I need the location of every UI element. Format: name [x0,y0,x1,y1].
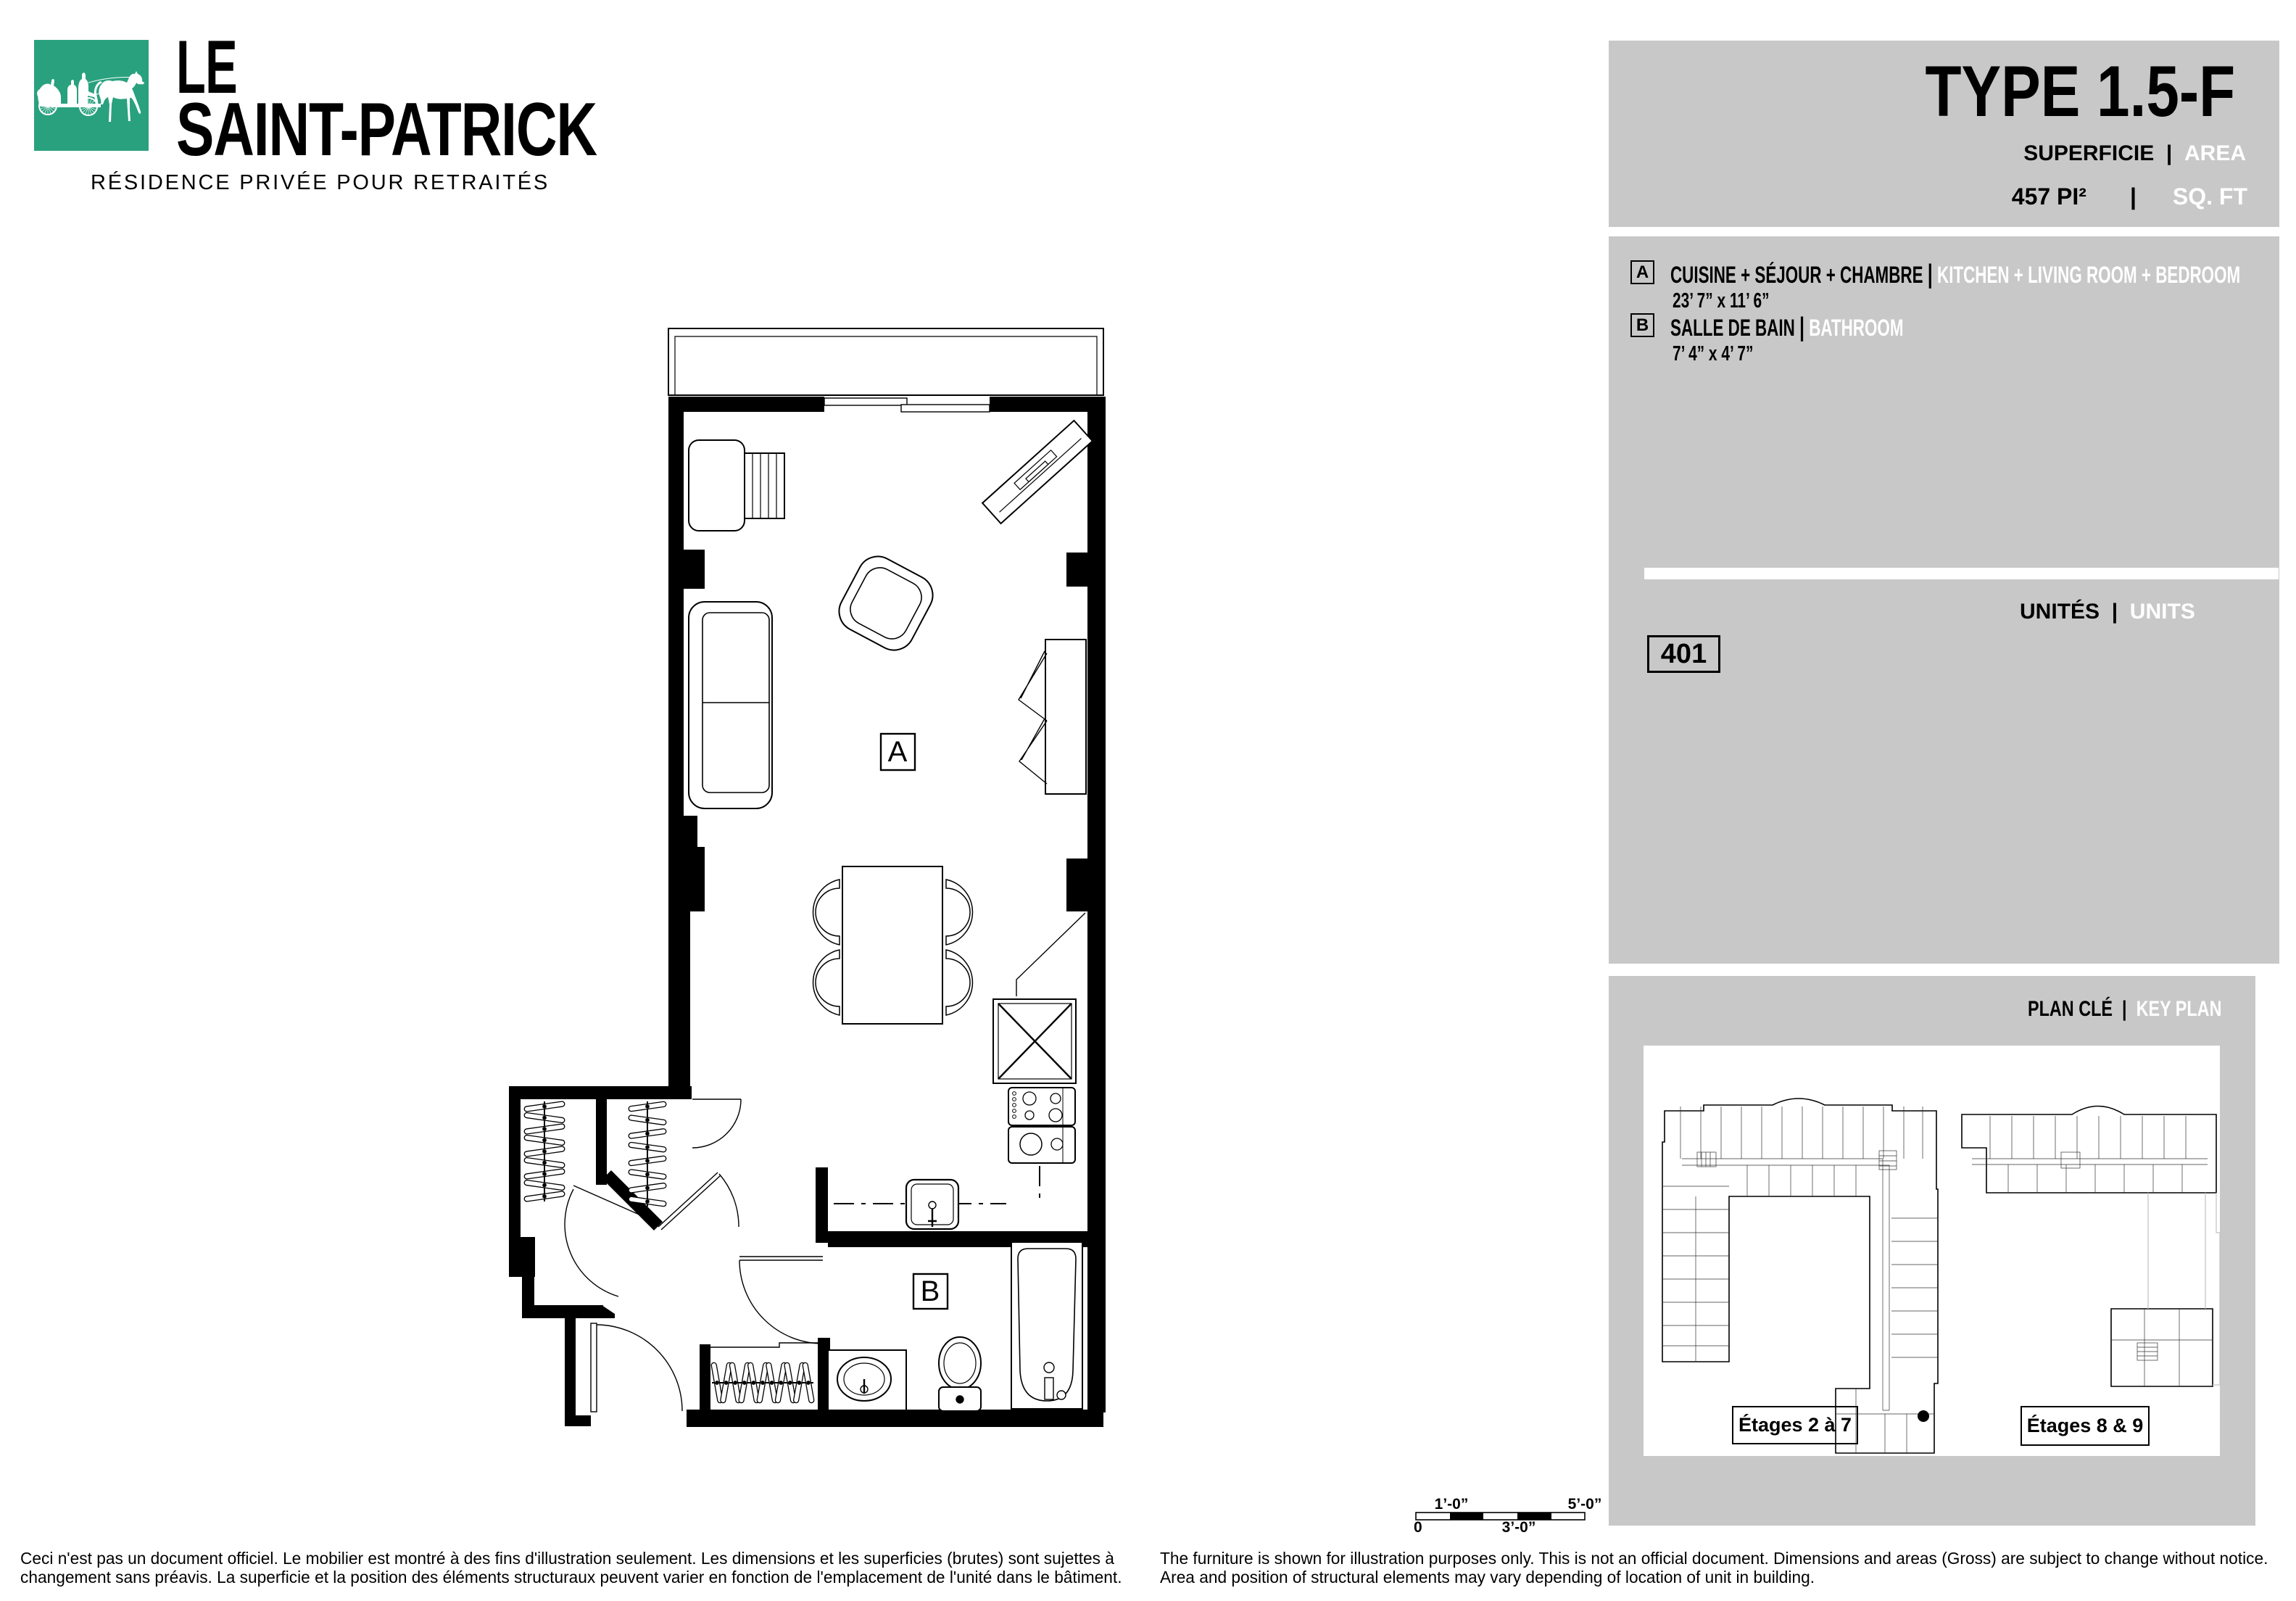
svg-text:A: A [888,736,908,768]
svg-text:5’-0”: 5’-0” [1568,1496,1602,1513]
svg-text:1’-0”: 1’-0” [1435,1496,1469,1513]
svg-text:3’-0”: 3’-0” [1502,1519,1536,1536]
svg-text:0: 0 [1414,1519,1422,1536]
svg-text:B: B [921,1275,940,1307]
